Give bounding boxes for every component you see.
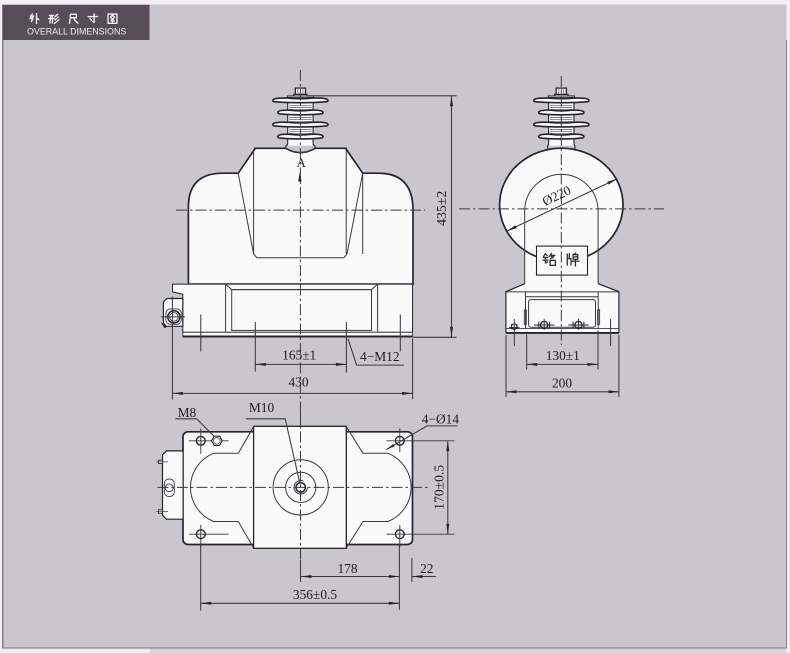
svg-text:M10: M10	[249, 400, 275, 415]
svg-text:M8: M8	[178, 405, 197, 420]
svg-text:430: 430	[288, 375, 308, 390]
svg-text:130±1: 130±1	[546, 348, 580, 363]
svg-text:OVERALL DIMENSIONS: OVERALL DIMENSIONS	[27, 27, 126, 37]
svg-text:4−M12: 4−M12	[360, 349, 400, 364]
svg-text:178: 178	[337, 561, 357, 576]
svg-text:356±0.5: 356±0.5	[293, 587, 337, 602]
svg-text:200: 200	[552, 376, 572, 391]
svg-text:4−Ø14: 4−Ø14	[422, 411, 460, 426]
svg-text:165±1: 165±1	[282, 347, 316, 362]
svg-text:A: A	[297, 155, 307, 170]
svg-text:22: 22	[420, 561, 433, 576]
svg-text:170±0.5: 170±0.5	[431, 465, 446, 510]
svg-text:435±2: 435±2	[434, 191, 449, 226]
